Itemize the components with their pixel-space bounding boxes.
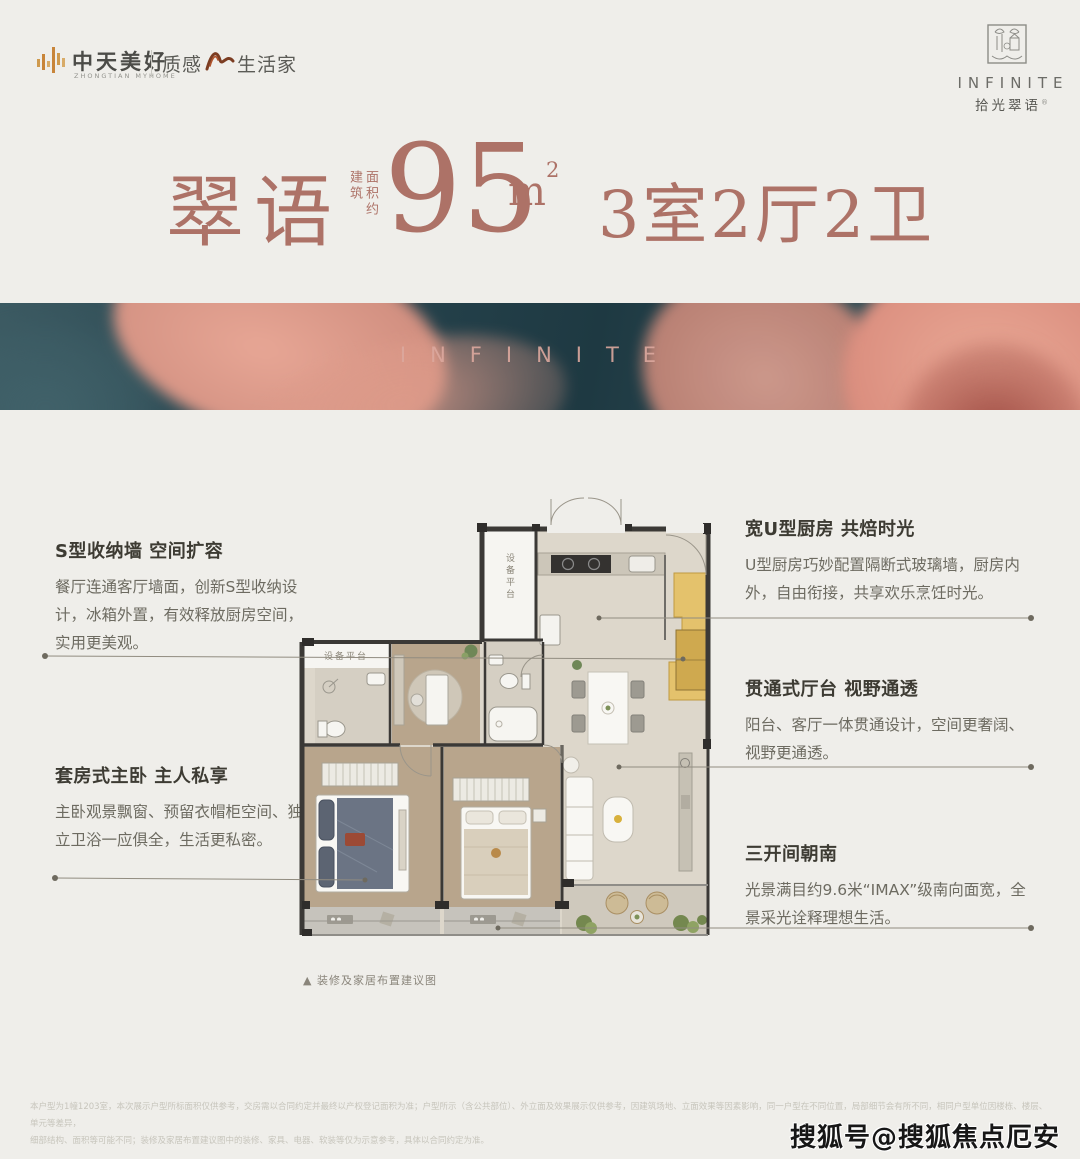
bench: [399, 810, 406, 870]
feature-body: 餐厅连通客厅墙面，创新S型收纳设计，冰箱外置，有效释放厨房空间，实用更美观。: [55, 573, 307, 658]
headline-area-prefix: 建筑 面积约: [347, 170, 377, 218]
chair: [411, 694, 423, 706]
feature-balcony: 贯通式厅台 视野通透 阳台、客厅一体贯通设计，空间更奢阔、视野更通透。: [745, 675, 1037, 767]
tagline-swoosh-icon: [204, 48, 236, 72]
feature-kitchen: 宽U型厨房 共焙时光 U型厨房巧妙配置隔断式玻璃墙，厨房内外，自由衔接，共享欢乐…: [745, 515, 1037, 607]
sofa: [566, 777, 593, 880]
blanket: [464, 829, 528, 895]
brand-divider: [151, 50, 152, 77]
pillow: [319, 800, 334, 840]
brand-tagline: 质感 生活家: [162, 48, 297, 78]
headline-area-unit: m2: [508, 158, 559, 215]
stove: [551, 555, 611, 573]
feature-body: 主卧观景飘窗、预留衣帽柜空间、独立卫浴一应俱全，生活更私密。: [55, 798, 307, 854]
sideboard: [679, 753, 692, 871]
pillow: [499, 811, 526, 824]
feature-south-facing: 三开间朝南 光景满目约9.6米“IMAX”级南向面宽，全景采光诠释理想生活。: [745, 840, 1037, 932]
project-emblem-icon: [982, 20, 1032, 68]
poster-page: 中天美好 ZHONGTIAN MYHOME 质感 生活家 INFINITE 拾光…: [0, 0, 1080, 1159]
sohu-watermark: 搜狐号@搜狐焦点厄安站: [790, 1117, 1080, 1159]
master-bedroom: [316, 763, 409, 892]
basin: [489, 655, 503, 665]
kitchen-sink: [629, 556, 655, 572]
trademark-symbol: ®: [1041, 99, 1051, 107]
equipment-platform-left-label: 设备平台: [324, 650, 368, 662]
wardrobe: [322, 763, 398, 786]
banner-watermark-text: INFINITE: [0, 343, 1080, 367]
feature-title: 宽U型厨房 共焙时光: [745, 515, 1037, 541]
pillow: [466, 811, 493, 824]
feature-storage-wall: S型收纳墙 空间扩容 餐厅连通客厅墙面，创新S型收纳设计，冰箱外置，有效释放厨房…: [55, 537, 307, 658]
toilet: [325, 721, 345, 737]
project-name-en: INFINITE: [938, 74, 1080, 92]
headline-name: 翠语: [166, 150, 342, 262]
feature-body: 阳台、客厅一体贯通设计，空间更奢阔、视野更通透。: [745, 711, 1037, 767]
feature-title: S型收纳墙 空间扩容: [55, 537, 307, 563]
feature-body: 光景满目约9.6米“IMAX”级南向面宽，全景采光诠释理想生活。: [745, 876, 1037, 932]
plan-caption: ▲ 装修及家居布置建议图: [303, 972, 437, 988]
feature-title: 三开间朝南: [745, 840, 1037, 866]
pillow: [319, 847, 334, 887]
feature-body: U型厨房巧妙配置隔断式玻璃墙，厨房内外，自由衔接，共享欢乐烹饪时光。: [745, 551, 1037, 607]
tagline-left: 质感: [162, 50, 202, 77]
wardrobe: [453, 778, 529, 801]
basin: [367, 673, 385, 685]
tagline-right: 生活家: [237, 50, 297, 77]
equipment-platform-top-label: 设备平台: [504, 553, 515, 601]
brand-bars-icon: [36, 45, 68, 81]
headline-rooms: 3室2厅2卫: [598, 162, 935, 256]
project-name-cn: 拾光翠语®: [938, 94, 1080, 114]
armchair: [563, 757, 579, 773]
feature-title: 贯通式厅台 视野通透: [745, 675, 1037, 701]
feature-title: 套房式主卧 主人私享: [55, 762, 307, 788]
plant: [572, 660, 582, 670]
hero-banner: INFINITE: [0, 303, 1080, 410]
nightstand: [533, 809, 546, 822]
desk: [426, 675, 448, 725]
feature-master-suite: 套房式主卧 主人私享 主卧观景飘窗、预留衣帽柜空间、独立卫浴一应俱全，生活更私密…: [55, 762, 307, 854]
toilet: [500, 674, 518, 689]
floorplan: 设备平台 设备平台: [285, 495, 725, 965]
